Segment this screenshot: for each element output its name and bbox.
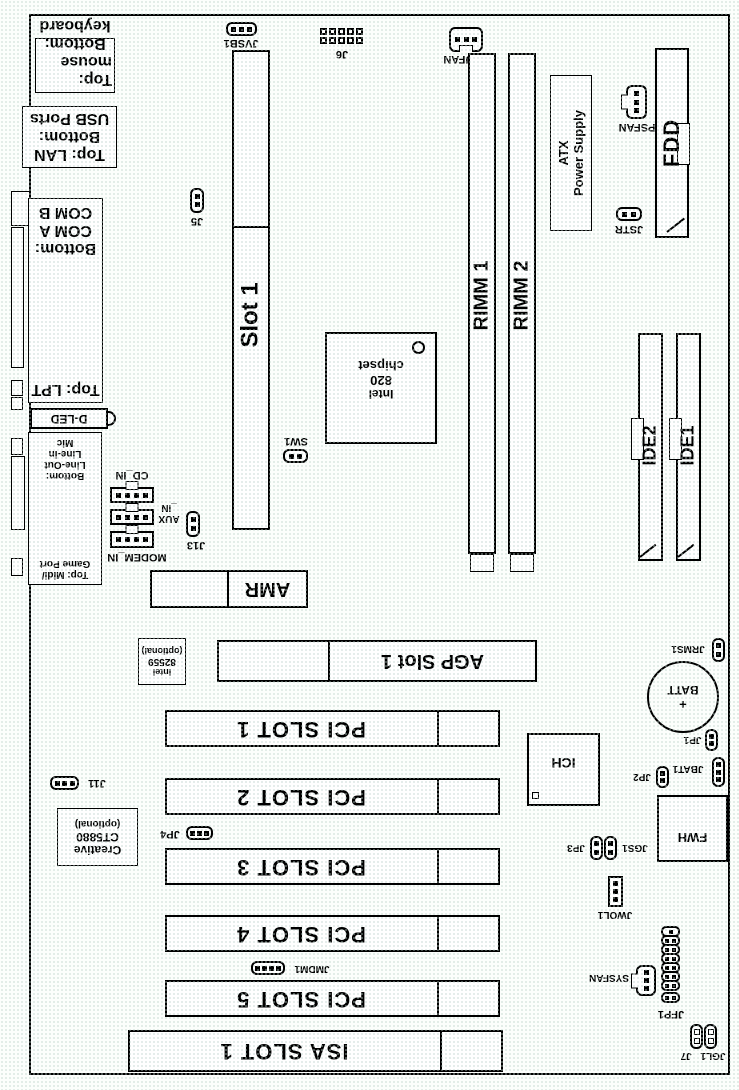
label-com-b: COM B bbox=[39, 203, 92, 221]
pin bbox=[672, 957, 676, 961]
pin bbox=[708, 1038, 714, 1044]
cpufan-connector bbox=[449, 27, 483, 52]
pin bbox=[347, 37, 354, 44]
lpt-com-connector: Top: LPT Bottom: COM A COM B bbox=[28, 198, 103, 403]
cd-in-connector bbox=[110, 487, 154, 503]
pin bbox=[672, 966, 676, 970]
pin bbox=[329, 28, 336, 35]
jfp1-segment bbox=[661, 980, 680, 991]
aux-in-connector bbox=[110, 509, 154, 525]
pin bbox=[329, 37, 336, 44]
jp2-jumper bbox=[656, 766, 669, 788]
ich-label: ICH bbox=[527, 747, 600, 777]
midi-audio-text: Top: Midi/ Game Port Bottom: Line-Out Li… bbox=[29, 433, 101, 584]
rear-tab bbox=[11, 397, 23, 410]
amr-label: AMR bbox=[227, 570, 308, 608]
pci1-label: PCI SLOT 1 bbox=[165, 710, 437, 747]
pin bbox=[320, 28, 327, 35]
pin bbox=[338, 28, 345, 35]
mouse-keyboard-connector: Top: mouse Bottom: keyboard bbox=[35, 38, 115, 93]
codec-line1: Creative bbox=[74, 843, 121, 856]
fdd-label: FDD bbox=[655, 100, 689, 185]
pin bbox=[125, 515, 130, 520]
pin bbox=[716, 770, 721, 775]
pci4-divider bbox=[437, 915, 439, 952]
j13-label: J13 bbox=[184, 539, 208, 551]
pin bbox=[672, 939, 676, 943]
pin bbox=[134, 515, 139, 520]
pci3-divider bbox=[437, 848, 439, 885]
pci4-label: PCI SLOT 4 bbox=[165, 915, 437, 952]
isa-divider bbox=[440, 1030, 442, 1072]
codec-line3: (optional) bbox=[75, 818, 121, 829]
cd-in-label: CD_IN bbox=[106, 468, 158, 481]
j13-jumper bbox=[186, 511, 200, 537]
chipset-line2: 820 bbox=[370, 372, 392, 387]
label-line-out: Line-Out bbox=[44, 459, 85, 470]
label-line-in: Line-in bbox=[49, 448, 82, 459]
pin bbox=[631, 212, 636, 217]
j5-jumper bbox=[190, 188, 204, 213]
pin bbox=[672, 996, 676, 1000]
pin bbox=[195, 194, 200, 199]
pin bbox=[70, 781, 75, 786]
pin bbox=[116, 515, 121, 520]
aux-line2: _IN bbox=[161, 502, 177, 513]
mouse-keyboard-text: Top: mouse Bottom: keyboard bbox=[36, 39, 114, 92]
label-mic: Mic bbox=[57, 437, 74, 448]
pin bbox=[665, 966, 669, 970]
jbat1-jumper bbox=[712, 757, 725, 787]
jp2-label: JP2 bbox=[630, 771, 654, 782]
jp4-label: JP4 bbox=[157, 827, 183, 840]
battery-text: + BATT bbox=[647, 675, 719, 719]
rear-tab bbox=[11, 438, 23, 455]
label-game-port: Game Port bbox=[40, 558, 91, 569]
pin bbox=[665, 957, 669, 961]
rear-tab bbox=[11, 456, 25, 530]
rimm1-label: RIMM 1 bbox=[468, 230, 496, 360]
pin bbox=[665, 996, 669, 1000]
jp3-label: JP3 bbox=[565, 841, 587, 853]
pin bbox=[269, 966, 274, 971]
jmdm1-connector bbox=[251, 961, 285, 975]
pin bbox=[634, 100, 639, 105]
pci1-divider bbox=[437, 710, 439, 747]
pin bbox=[134, 493, 139, 498]
pin bbox=[125, 537, 130, 542]
jvsb1-jumper bbox=[226, 22, 257, 36]
pin bbox=[594, 841, 599, 846]
pin bbox=[191, 526, 196, 531]
pin bbox=[289, 454, 294, 459]
j7-header bbox=[704, 1024, 717, 1049]
pin bbox=[669, 930, 673, 934]
pin bbox=[347, 28, 354, 35]
lan-chip-line1: Intel bbox=[153, 667, 172, 677]
lan-chip-text: Intel 82559 (optional) bbox=[138, 639, 186, 684]
pin bbox=[190, 831, 195, 836]
isa-label: ISA SLOT 1 bbox=[128, 1030, 440, 1072]
modem-in-connector bbox=[110, 531, 154, 548]
pin bbox=[356, 37, 363, 44]
pin bbox=[708, 1029, 714, 1035]
label-bottom: Bottom: bbox=[35, 239, 96, 257]
pin bbox=[320, 37, 327, 44]
pin bbox=[134, 537, 139, 542]
j6-label: J6 bbox=[330, 48, 354, 60]
pin bbox=[608, 841, 613, 846]
pin bbox=[239, 27, 244, 32]
j11-label: J11 bbox=[83, 777, 111, 789]
pin bbox=[709, 734, 714, 739]
sw1-switch bbox=[283, 449, 308, 463]
lan-chip-line3: (optional) bbox=[142, 646, 183, 656]
rimm2-end-block bbox=[510, 554, 534, 572]
pin bbox=[472, 37, 477, 42]
label-top-midi: Top: Midi/ bbox=[42, 569, 88, 580]
pin bbox=[195, 202, 200, 207]
atx-label-line2: Power Supply bbox=[571, 110, 586, 196]
pin bbox=[672, 975, 676, 979]
pin bbox=[665, 948, 669, 952]
pin bbox=[716, 643, 721, 648]
lan-chip-line2: 82559 bbox=[148, 656, 176, 667]
modem-in-label: MODEM_IN bbox=[102, 550, 172, 563]
label-top-lpt: Top: LPT bbox=[31, 380, 99, 398]
pin bbox=[204, 831, 209, 836]
label-usb-ports: USB Ports bbox=[30, 109, 109, 127]
pin bbox=[660, 778, 665, 783]
pin bbox=[231, 27, 236, 32]
chipset-text: Intel 820 chipset bbox=[325, 348, 437, 410]
pin bbox=[622, 212, 627, 217]
cpufan-notch bbox=[459, 45, 473, 52]
sw1-label: SW1 bbox=[281, 435, 311, 447]
jmdm1-label: JMDM1 bbox=[288, 962, 336, 974]
motherboard-diagram: Top: mouse Bottom: keyboard Top: LAN Bot… bbox=[0, 0, 739, 1090]
jp3-jumper bbox=[590, 836, 603, 860]
pin bbox=[297, 454, 302, 459]
pci2-divider bbox=[437, 778, 439, 815]
pin bbox=[672, 984, 676, 988]
battery-plus: + bbox=[679, 696, 687, 711]
pci3-label: PCI SLOT 3 bbox=[165, 848, 437, 885]
psfan-connector bbox=[626, 85, 647, 119]
label-bottom: Bottom: bbox=[44, 34, 105, 52]
jstr-jumper bbox=[616, 207, 642, 221]
pin bbox=[143, 515, 148, 520]
pin bbox=[608, 850, 613, 855]
atx-label-line1: ATX bbox=[556, 110, 571, 196]
ich-pin1-marker bbox=[532, 792, 539, 799]
aux-line1: AUX bbox=[158, 513, 179, 524]
jgs1-label: JGS1 bbox=[619, 841, 651, 853]
pin bbox=[672, 948, 676, 952]
sysfan-connector bbox=[636, 965, 656, 996]
jp1-jumper bbox=[705, 729, 718, 751]
pin bbox=[665, 975, 669, 979]
rear-tab bbox=[11, 227, 24, 368]
jgs1-jumper bbox=[604, 836, 617, 860]
j11-jumper bbox=[50, 776, 79, 790]
jbat1-label: JBAT1 bbox=[666, 763, 710, 774]
dled-label: D-LED bbox=[30, 409, 108, 428]
jfp1-header bbox=[661, 926, 680, 1003]
pin bbox=[125, 493, 130, 498]
rear-tab bbox=[11, 380, 23, 396]
jp4-jumper bbox=[186, 826, 213, 840]
aux-in-tab bbox=[126, 503, 139, 512]
pin bbox=[634, 91, 639, 96]
pin bbox=[191, 517, 196, 522]
pin bbox=[665, 939, 669, 943]
rimm2-label: RIMM 2 bbox=[508, 230, 536, 360]
label-bottom: Bottom: bbox=[39, 127, 100, 145]
pin bbox=[660, 771, 665, 776]
slot1-label: Slot 1 bbox=[232, 245, 270, 385]
pci5-divider bbox=[437, 980, 439, 1017]
pin bbox=[247, 27, 252, 32]
cd-in-tab bbox=[126, 481, 139, 490]
pin bbox=[255, 966, 260, 971]
pin bbox=[634, 108, 639, 113]
pin bbox=[62, 781, 67, 786]
pin bbox=[665, 984, 669, 988]
pin bbox=[716, 652, 721, 657]
lan-usb-text: Top: LAN Bottom: USB Ports bbox=[23, 107, 116, 167]
codec-line2: CT5880 bbox=[76, 829, 119, 842]
pin bbox=[116, 537, 121, 542]
jgl1-j7-label: JGL1 J7 bbox=[674, 1050, 732, 1061]
fwh-label: FWH bbox=[657, 822, 728, 852]
rimm1-end-block bbox=[470, 554, 494, 572]
pin bbox=[276, 966, 281, 971]
jrms1-label: JRMS1 bbox=[666, 643, 710, 654]
pin bbox=[455, 37, 460, 42]
aux-in-label: AUX _IN bbox=[153, 500, 185, 526]
label-com-a: COM A bbox=[39, 221, 92, 239]
pin bbox=[356, 28, 363, 35]
psfan-tab bbox=[621, 95, 628, 110]
pin bbox=[116, 493, 121, 498]
jfp1-segment bbox=[661, 992, 680, 1003]
jwol1-header bbox=[608, 876, 623, 907]
midi-audio-connector: Top: Midi/ Game Port Bottom: Line-Out Li… bbox=[28, 432, 102, 585]
jgl1-header bbox=[690, 1024, 703, 1049]
pin bbox=[464, 37, 469, 42]
atx-power-label: ATX Power Supply bbox=[550, 75, 592, 231]
pin bbox=[716, 762, 721, 767]
pin bbox=[644, 986, 649, 991]
pin bbox=[694, 1029, 700, 1035]
modem-in-tab bbox=[126, 525, 139, 534]
chipset-line3: chipset bbox=[358, 358, 404, 373]
pci2-label: PCI SLOT 2 bbox=[165, 778, 437, 815]
jfp1-label: JFP1 bbox=[652, 1008, 690, 1020]
jp1-label: JP1 bbox=[682, 734, 703, 745]
pin bbox=[197, 831, 202, 836]
pin bbox=[143, 493, 148, 498]
label-keyboard: keyboard bbox=[39, 16, 110, 34]
jstr-label: JSTR bbox=[611, 223, 647, 235]
label-top-mouse: Top: mouse bbox=[38, 52, 112, 88]
pin bbox=[644, 970, 649, 975]
pin bbox=[613, 889, 618, 894]
rear-tab bbox=[11, 558, 23, 576]
j6-header bbox=[319, 24, 364, 47]
chipset-line1: Intel bbox=[369, 387, 394, 400]
battery-label: BATT bbox=[667, 683, 698, 696]
pin bbox=[613, 897, 618, 902]
pin bbox=[262, 966, 267, 971]
audio-codec-text: Creative CT5880 (optional) bbox=[57, 810, 138, 864]
jwol1-label: JWOL1 bbox=[590, 909, 640, 920]
pin bbox=[716, 777, 721, 782]
label-top-lan: Top: LAN bbox=[34, 145, 105, 163]
pin bbox=[55, 781, 60, 786]
pin bbox=[644, 978, 649, 983]
agp-label: AGP Slot 1 bbox=[328, 640, 537, 682]
ide2-label: IDE2 bbox=[638, 385, 663, 505]
pci5-label: PCI SLOT 5 bbox=[165, 980, 437, 1017]
pin bbox=[594, 850, 599, 855]
pin bbox=[143, 537, 148, 542]
ide1-label: IDE1 bbox=[676, 385, 701, 505]
jvsb1-label: JVSB1 bbox=[213, 37, 269, 49]
label-bottom: Bottom: bbox=[46, 470, 84, 481]
jrms1-jumper bbox=[712, 638, 725, 662]
lan-usb-connector: Top: LAN Bottom: USB Ports bbox=[22, 106, 117, 168]
slot1-divider bbox=[232, 226, 270, 228]
pin bbox=[694, 1038, 700, 1044]
pin bbox=[338, 37, 345, 44]
sysfan-label: SYSFAN bbox=[584, 971, 634, 983]
j5-label: J5 bbox=[186, 215, 208, 227]
pin bbox=[709, 741, 714, 746]
pin bbox=[613, 881, 618, 886]
lpt-com-text: Top: LPT Bottom: COM A COM B bbox=[29, 199, 102, 402]
